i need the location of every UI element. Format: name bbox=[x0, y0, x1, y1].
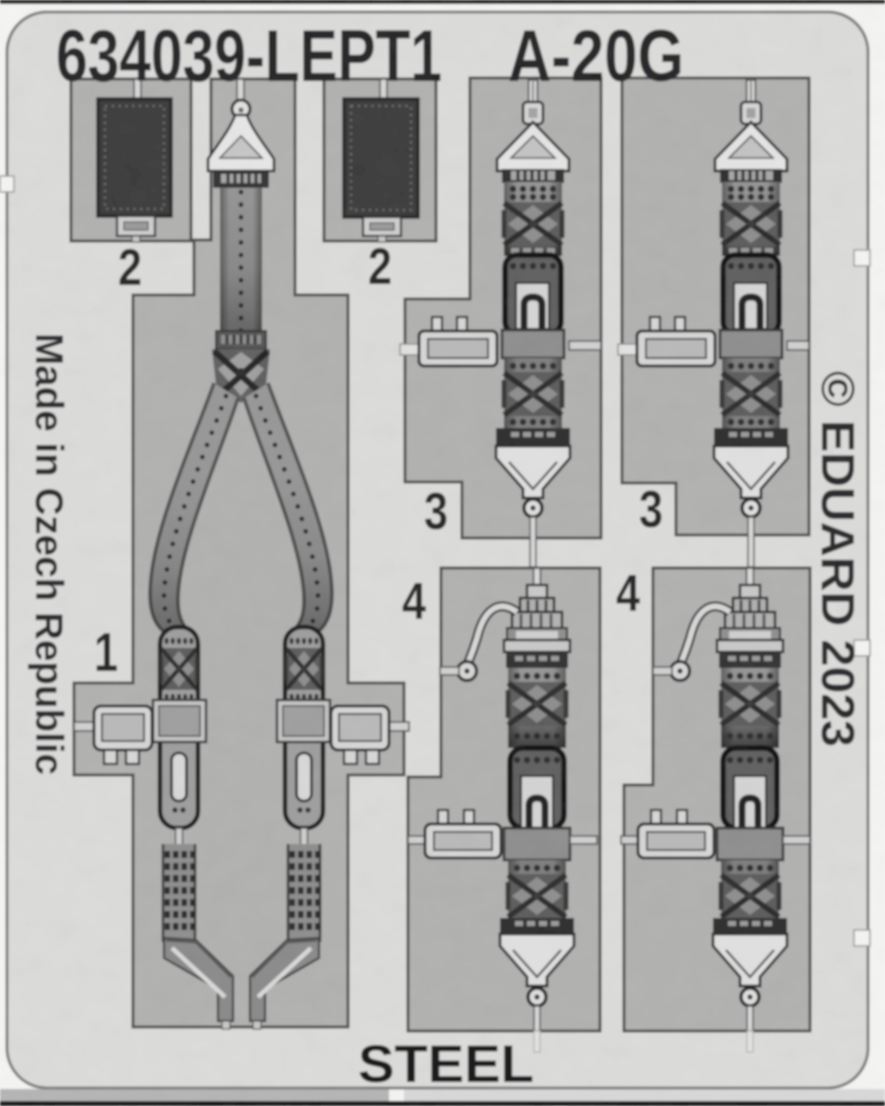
svg-text:4: 4 bbox=[616, 565, 640, 623]
svg-text:STEEL: STEEL bbox=[358, 1035, 534, 1094]
svg-text:2: 2 bbox=[118, 239, 142, 297]
svg-text:3: 3 bbox=[424, 483, 448, 541]
svg-text:3: 3 bbox=[639, 481, 663, 539]
svg-text:1: 1 bbox=[94, 621, 118, 683]
svg-text:2: 2 bbox=[368, 238, 392, 296]
svg-text:4: 4 bbox=[402, 573, 426, 631]
